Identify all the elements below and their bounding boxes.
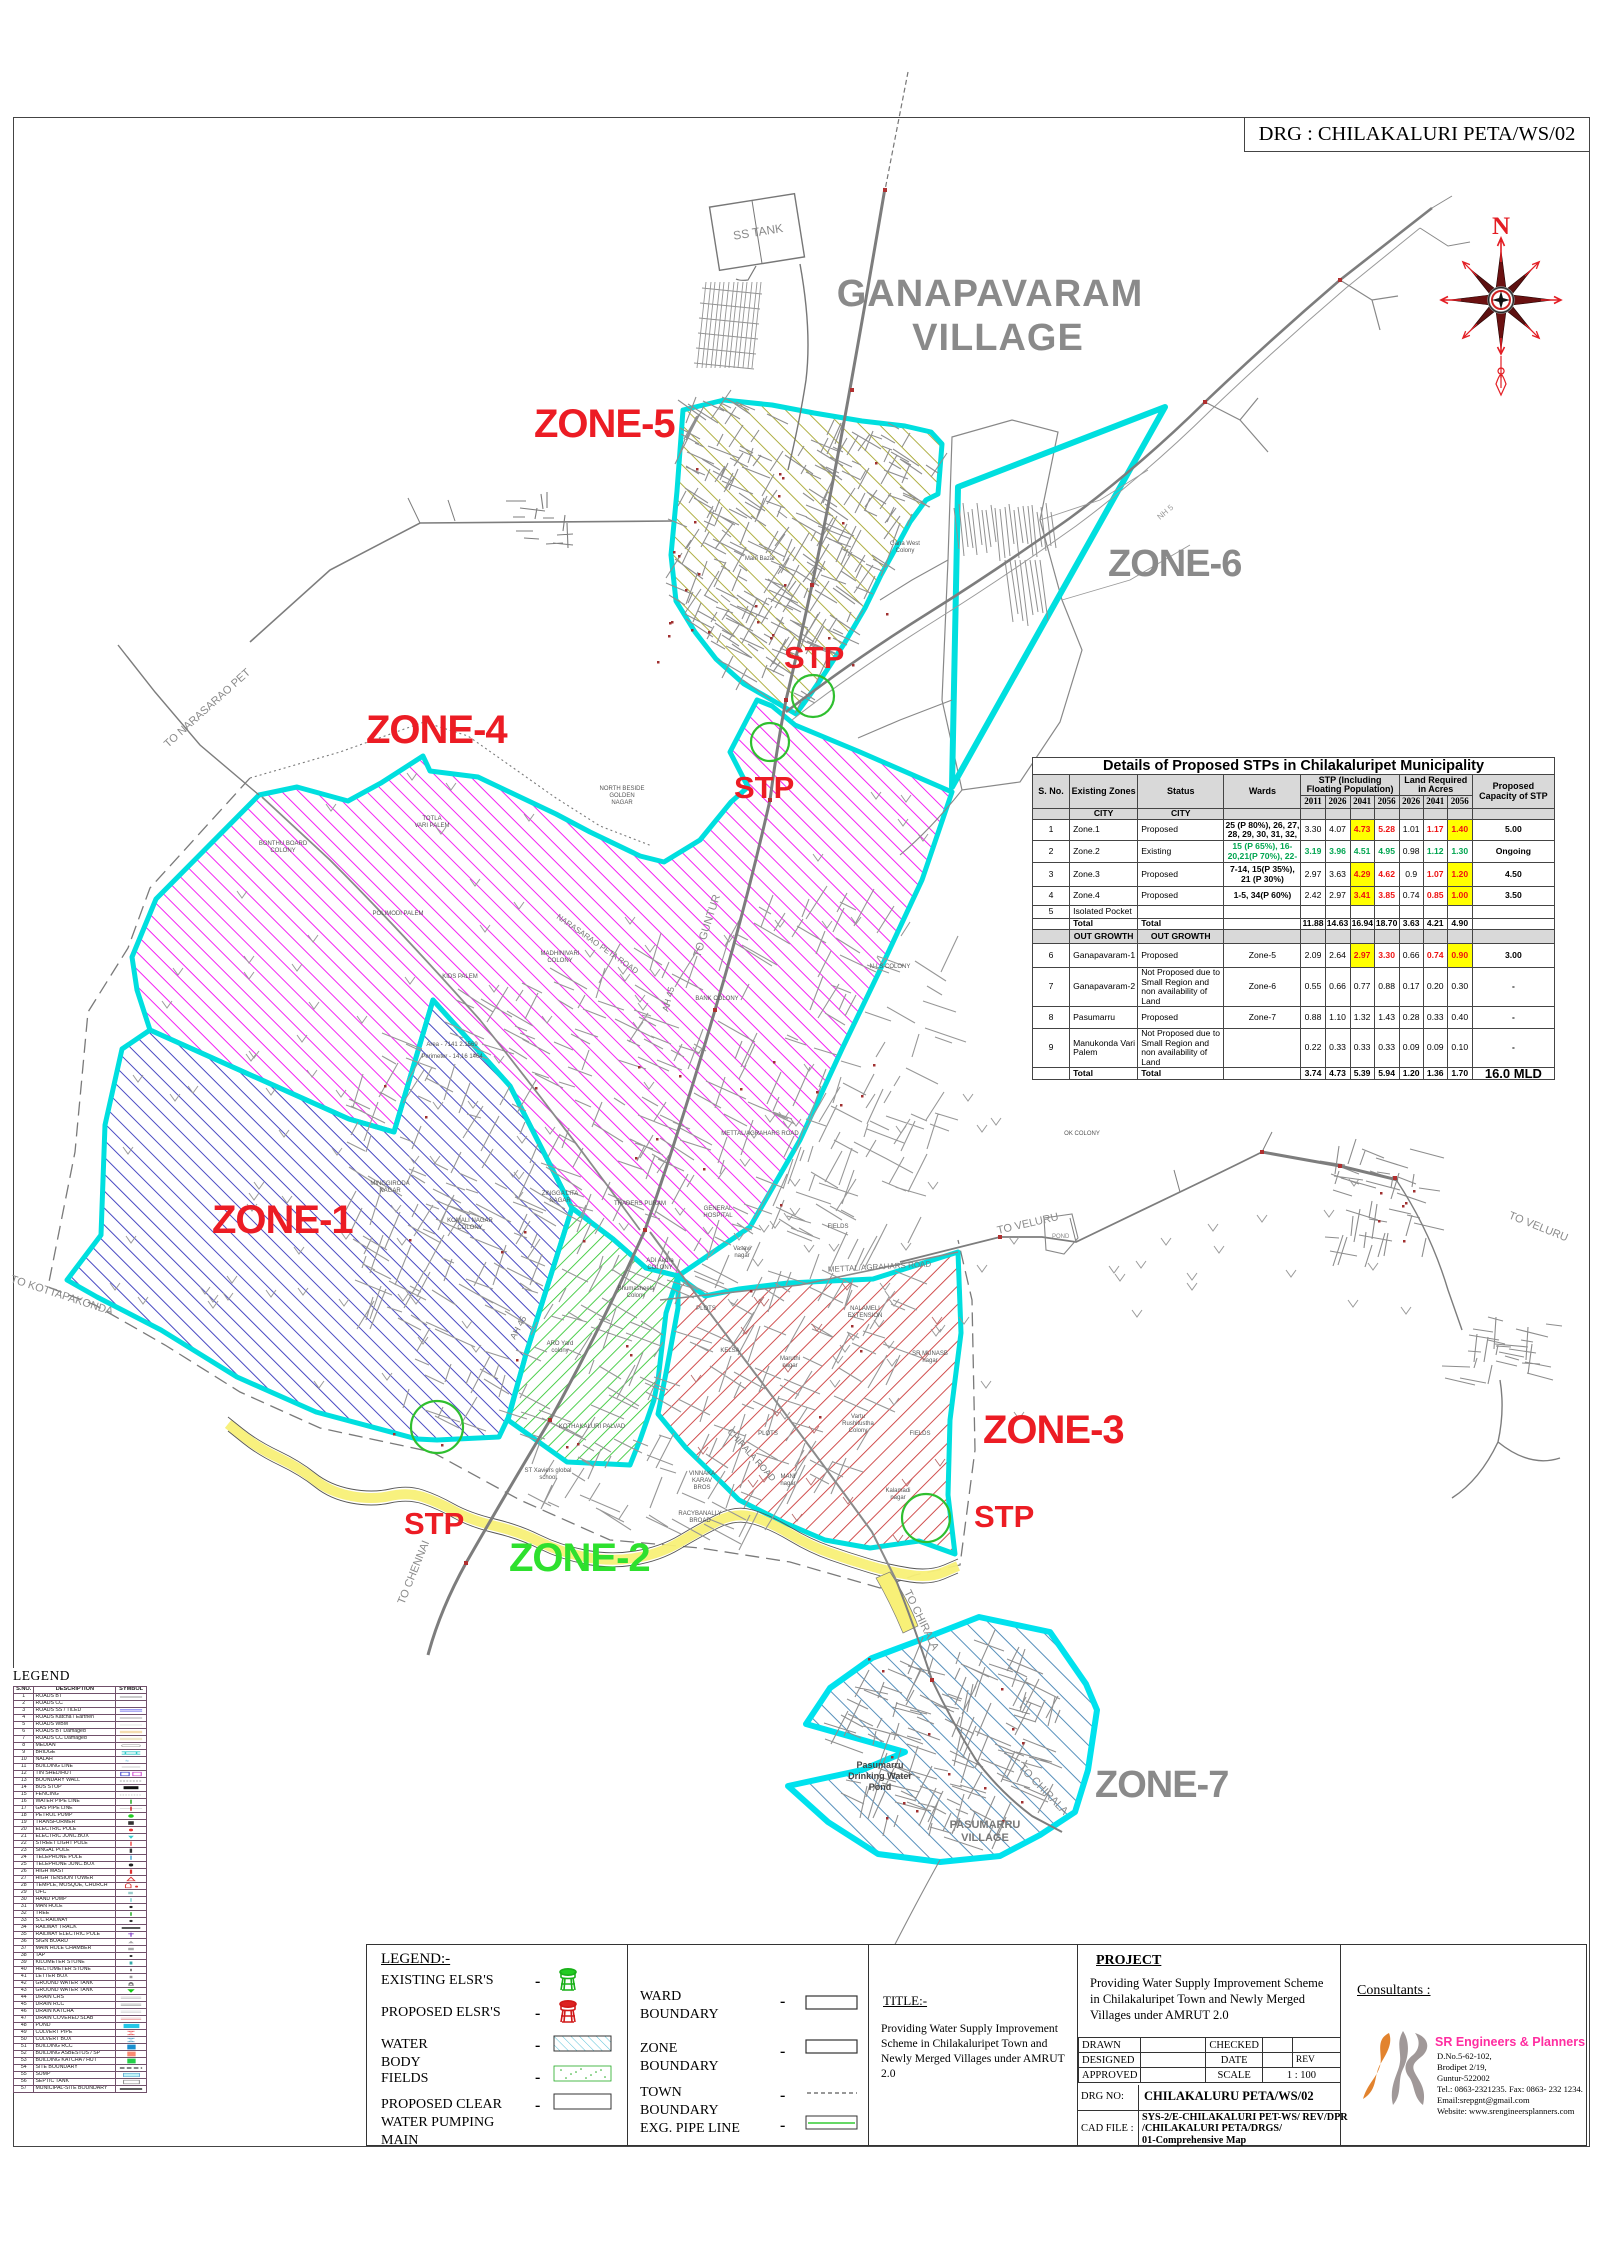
svg-text:Gana West: Gana West: [890, 541, 920, 547]
svg-text:POND: POND: [1052, 1234, 1070, 1240]
svg-text:N: N: [1492, 213, 1510, 240]
svg-text:GOLDEN: GOLDEN: [609, 793, 634, 799]
svg-text:TO NARASARAO PET: TO NARASARAO PET: [162, 666, 253, 750]
svg-text:POLIMODI PALEM: POLIMODI PALEM: [373, 911, 424, 917]
svg-text:TO VELURU: TO VELURU: [996, 1211, 1060, 1237]
svg-text:VILLAGE: VILLAGE: [961, 1832, 1009, 1844]
svg-text:BROS: BROS: [693, 1485, 710, 1491]
svg-text:Kalamadi: Kalamadi: [885, 1488, 910, 1494]
svg-text:KOTHAKALURI PALVAD: KOTHAKALURI PALVAD: [559, 1424, 626, 1430]
svg-text:EXTENSION: EXTENSION: [848, 1313, 883, 1319]
svg-text:ST Xaviers global: ST Xaviers global: [525, 1468, 572, 1474]
svg-text:KIDS PALEM: KIDS PALEM: [442, 974, 478, 980]
svg-text:METTAL/AGRAHARS ROAD: METTAL/AGRAHARS ROAD: [721, 1131, 799, 1137]
svg-text:FIELDS: FIELDS: [827, 1224, 848, 1230]
svg-text:TO CHENNAI: TO CHENNAI: [396, 1539, 432, 1606]
svg-text:Pond: Pond: [869, 1782, 892, 1792]
svg-text:Area - 7141 2.1569: Area - 7141 2.1569: [426, 1042, 478, 1048]
svg-text:STP: STP: [974, 1499, 1034, 1534]
svg-text:Main Bazar: Main Bazar: [745, 556, 775, 562]
svg-text:Rushitustha: Rushitustha: [842, 1421, 874, 1427]
svg-text:Colony: Colony: [896, 548, 915, 554]
svg-text:NAGAR: NAGAR: [379, 1188, 401, 1194]
svg-text:Vartu: Vartu: [851, 1414, 865, 1420]
svg-text:TO VELURU: TO VELURU: [1507, 1210, 1570, 1245]
svg-text:Maruthi: Maruthi: [780, 1356, 800, 1362]
svg-text:N-LS COLONY: N-LS COLONY: [870, 964, 911, 970]
svg-text:ZONE-5: ZONE-5: [534, 402, 675, 446]
svg-text:ZONE-2: ZONE-2: [509, 1536, 650, 1580]
svg-text:COLONY: COLONY: [547, 958, 572, 964]
svg-text:COLONY: COLONY: [647, 1265, 672, 1271]
svg-text:SR MUNASB: SR MUNASB: [912, 1351, 948, 1357]
svg-text:nagar: nagar: [734, 1253, 749, 1259]
svg-text:Vasavi: Vasavi: [733, 1246, 751, 1252]
svg-text:NAGAR: NAGAR: [549, 1198, 571, 1204]
svg-text:HOSPITAL: HOSPITAL: [703, 1213, 733, 1219]
svg-text:Pasumarru: Pasumarru: [856, 1760, 903, 1770]
svg-text:NORTH BESIDE: NORTH BESIDE: [600, 786, 645, 792]
svg-text:MINGGIRODA: MINGGIRODA: [370, 1181, 409, 1187]
svg-text:OK COLONY: OK COLONY: [1064, 1131, 1100, 1137]
svg-text:STP: STP: [734, 770, 794, 805]
svg-text:ADI Aedra: ADI Aedra: [646, 1258, 674, 1264]
svg-text:ZONE-4: ZONE-4: [366, 708, 508, 752]
svg-text:colony: colony: [551, 1348, 568, 1354]
svg-text:GENERAL: GENERAL: [704, 1206, 733, 1212]
svg-text:PLOTS: PLOTS: [758, 1431, 778, 1437]
svg-text:MADHINIVARI: MADHINIVARI: [541, 951, 580, 957]
svg-text:KELSA: KELSA: [720, 1348, 739, 1354]
svg-text:ARO Yard: ARO Yard: [547, 1341, 574, 1347]
svg-text:nagar: nagar: [780, 1481, 795, 1487]
svg-text:≈: ≈: [126, 1758, 130, 1762]
svg-text:nagar: nagar: [890, 1495, 905, 1501]
svg-text:VARI PALEM: VARI PALEM: [414, 823, 449, 829]
svg-text:COLONY: COLONY: [270, 848, 295, 854]
svg-text:TOTLA: TOTLA: [422, 816, 441, 822]
svg-text:BROAD: BROAD: [689, 1518, 711, 1524]
svg-text:BONTHU BOARD: BONTHU BOARD: [259, 841, 308, 847]
svg-text:PASUMARRU: PASUMARRU: [950, 1819, 1021, 1831]
svg-text:FIELDS: FIELDS: [909, 1431, 930, 1437]
svg-text:KOMALI NAGAR: KOMALI NAGAR: [447, 1218, 493, 1224]
svg-text:school: school: [539, 1475, 556, 1481]
svg-text:Bhumasheela: Bhumasheela: [618, 1286, 655, 1292]
svg-text:nagar: nagar: [782, 1363, 797, 1369]
svg-text:nagar: nagar: [922, 1358, 937, 1364]
svg-text:MANI: MANI: [781, 1474, 796, 1480]
svg-text:RACYBANALLY: RACYBANALLY: [678, 1511, 721, 1517]
svg-text:COLONY: COLONY: [457, 1225, 482, 1231]
svg-text:Drinking Water: Drinking Water: [848, 1771, 912, 1781]
svg-text:TRADERS PURAM: TRADERS PURAM: [614, 1201, 666, 1207]
svg-text:ZONE-7: ZONE-7: [1095, 1764, 1228, 1806]
svg-text:VILLAGE: VILLAGE: [912, 317, 1084, 359]
svg-text:Colony: Colony: [627, 1293, 646, 1299]
svg-text:BANK COLONY: BANK COLONY: [695, 996, 738, 1002]
svg-text:NH 5: NH 5: [1156, 503, 1176, 522]
svg-text:GANAPAVARAM: GANAPAVARAM: [837, 273, 1144, 315]
svg-text:PLOTS: PLOTS: [696, 1306, 716, 1312]
svg-text:Perimeter - 14,16 1464: Perimeter - 14,16 1464: [421, 1054, 483, 1060]
svg-text:Colony: Colony: [849, 1428, 868, 1434]
svg-text:ZINGGA LITA: ZINGGA LITA: [542, 1191, 579, 1197]
svg-text:VINNAKA: VINNAKA: [689, 1471, 715, 1477]
svg-text:ZONE-6: ZONE-6: [1108, 543, 1241, 585]
svg-text:NAGAR: NAGAR: [611, 800, 633, 806]
svg-text:STP: STP: [404, 1506, 464, 1541]
svg-text:STP: STP: [784, 640, 844, 675]
svg-text:KARAV: KARAV: [692, 1478, 712, 1484]
svg-text:NALAMELI: NALAMELI: [850, 1306, 880, 1312]
svg-text:ZONE-1: ZONE-1: [212, 1198, 353, 1242]
svg-text:ZONE-3: ZONE-3: [983, 1408, 1124, 1452]
